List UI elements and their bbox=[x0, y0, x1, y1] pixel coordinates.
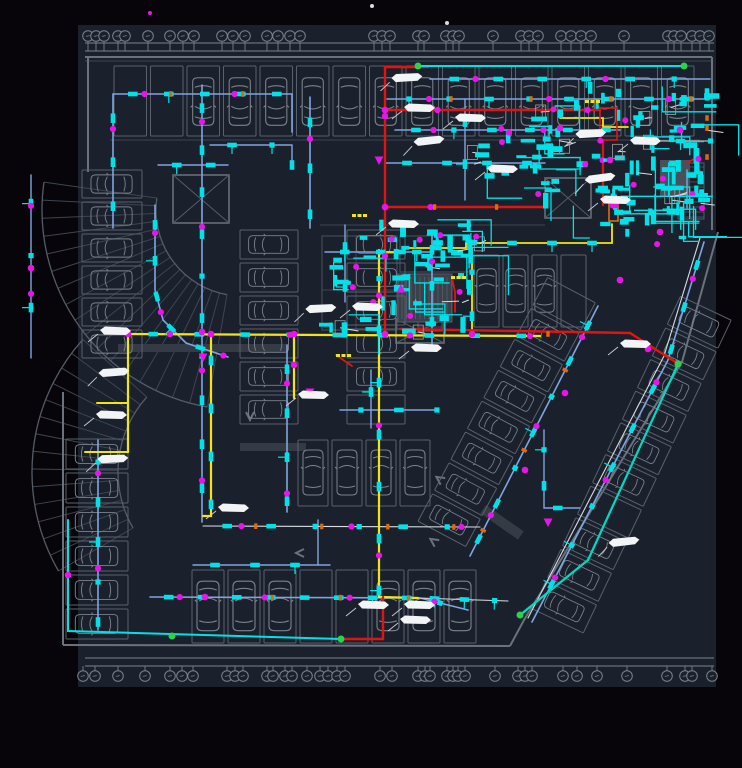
device-body bbox=[625, 77, 635, 82]
cluster-device bbox=[545, 189, 560, 193]
label-body bbox=[600, 196, 631, 205]
highlight-dash bbox=[591, 100, 595, 103]
wall-line bbox=[63, 645, 510, 646]
cluster-device bbox=[600, 222, 610, 226]
device-body bbox=[272, 92, 282, 97]
light-fixture-device bbox=[469, 270, 474, 275]
junction-dot bbox=[426, 96, 432, 102]
conduit-tick bbox=[449, 96, 452, 102]
margin-speck bbox=[370, 4, 374, 8]
junction-dot bbox=[533, 423, 539, 429]
cluster-device bbox=[478, 143, 490, 148]
junction-dot bbox=[677, 127, 684, 134]
light-fixture-device bbox=[209, 500, 214, 510]
cluster-device bbox=[672, 93, 676, 101]
label-body bbox=[298, 391, 329, 400]
device-body bbox=[644, 97, 654, 102]
conduit-tick bbox=[271, 595, 274, 601]
junction-dot bbox=[695, 156, 701, 162]
device-body bbox=[240, 332, 250, 337]
light-fixture-device bbox=[285, 408, 290, 418]
cluster-device bbox=[683, 142, 697, 148]
device-body bbox=[210, 563, 220, 568]
highlight-dash bbox=[457, 276, 461, 279]
junction-dot bbox=[291, 362, 298, 369]
cluster-device bbox=[333, 280, 349, 285]
cluster-device bbox=[394, 249, 399, 259]
junction-dot bbox=[199, 367, 205, 373]
device-body bbox=[547, 241, 557, 246]
light-fixture-device bbox=[553, 506, 563, 511]
device-body bbox=[463, 159, 468, 169]
light-fixture-device bbox=[402, 596, 412, 601]
cluster-device bbox=[679, 102, 686, 107]
light-fixture-device bbox=[272, 92, 282, 97]
device-body bbox=[200, 229, 205, 239]
cluster-device bbox=[551, 179, 559, 184]
device-body bbox=[369, 387, 374, 397]
light-fixture-device bbox=[209, 404, 214, 414]
cluster-device bbox=[651, 156, 656, 170]
junction-dot bbox=[199, 119, 205, 125]
cluster-device bbox=[648, 208, 652, 215]
cluster-device bbox=[329, 323, 333, 333]
junction-dot bbox=[622, 117, 628, 123]
junction-dot bbox=[457, 289, 463, 295]
cluster-device bbox=[467, 280, 472, 295]
junction-dot bbox=[617, 277, 624, 284]
device-body bbox=[442, 161, 452, 166]
device-body bbox=[200, 187, 205, 197]
light-fixture-device bbox=[376, 276, 381, 281]
cluster-device bbox=[434, 277, 444, 281]
light-fixture-device bbox=[266, 524, 276, 529]
junction-dot bbox=[552, 575, 558, 581]
junction-dot bbox=[657, 229, 664, 236]
light-fixture-device bbox=[200, 439, 205, 449]
cluster-device bbox=[435, 264, 450, 268]
light-fixture-device bbox=[285, 496, 290, 506]
junction-dot bbox=[654, 241, 660, 247]
cluster-device bbox=[669, 135, 674, 142]
junction-dot bbox=[584, 107, 590, 113]
light-fixture-device bbox=[96, 497, 101, 507]
junction-dot bbox=[141, 91, 147, 97]
device-body bbox=[377, 378, 382, 388]
cluster-device bbox=[516, 155, 526, 158]
endpoint-dot bbox=[517, 612, 524, 619]
cluster-device bbox=[391, 300, 395, 315]
cluster-device bbox=[447, 234, 453, 249]
light-fixture-device bbox=[28, 253, 33, 258]
light-fixture-device bbox=[200, 395, 205, 405]
light-fixture-device bbox=[449, 77, 459, 82]
cluster-stub bbox=[442, 301, 459, 302]
conduit-tick bbox=[386, 524, 389, 530]
cad-app-viewport bbox=[0, 0, 742, 768]
highlighted-text-mark bbox=[451, 276, 466, 279]
junction-dot bbox=[28, 265, 35, 272]
cluster-device bbox=[669, 161, 680, 167]
junction-dot bbox=[660, 176, 666, 182]
junction-dot bbox=[540, 127, 546, 133]
device-body bbox=[411, 128, 421, 133]
device-body bbox=[300, 595, 310, 600]
cluster-device bbox=[530, 164, 541, 168]
device-body bbox=[377, 430, 382, 440]
cluster-device bbox=[333, 258, 342, 263]
cluster-device bbox=[543, 193, 548, 209]
conduit-tick bbox=[705, 125, 708, 131]
label-body bbox=[404, 601, 435, 610]
light-fixture-device bbox=[95, 579, 100, 584]
cluster-device bbox=[484, 173, 494, 179]
light-fixture-device bbox=[200, 103, 205, 113]
junction-dot bbox=[110, 126, 116, 132]
junction-dot bbox=[382, 204, 389, 211]
device-body bbox=[95, 579, 100, 584]
light-fixture-device bbox=[199, 274, 204, 279]
junction-dot bbox=[28, 291, 34, 297]
junction-dot bbox=[389, 236, 395, 242]
device-body bbox=[434, 407, 439, 412]
junction-dot bbox=[506, 130, 512, 136]
junction-dot bbox=[582, 161, 588, 167]
junction-dot bbox=[535, 191, 541, 197]
beam-bar bbox=[240, 443, 306, 451]
junction-dot bbox=[382, 331, 389, 338]
light-fixture-device bbox=[308, 210, 313, 220]
cluster-device bbox=[631, 126, 634, 138]
cluster-device bbox=[364, 255, 377, 258]
light-fixture-device bbox=[164, 595, 174, 600]
device-body bbox=[164, 595, 174, 600]
light-fixture-device bbox=[200, 483, 205, 493]
conduit-tick bbox=[241, 91, 244, 97]
light-fixture-device bbox=[487, 128, 497, 133]
junction-dot bbox=[499, 139, 505, 145]
junction-dot bbox=[430, 127, 436, 133]
device-body bbox=[451, 127, 456, 132]
junction-dot bbox=[348, 523, 354, 529]
device-body bbox=[153, 256, 158, 266]
light-fixture-device bbox=[644, 97, 654, 102]
cluster-device bbox=[680, 97, 687, 101]
junction-dot bbox=[382, 253, 388, 259]
junction-dot bbox=[631, 182, 637, 188]
device-body bbox=[28, 253, 33, 258]
junction-dot bbox=[551, 106, 557, 112]
cluster-device bbox=[615, 155, 625, 160]
light-fixture-device bbox=[111, 157, 116, 167]
conduit-run-y bbox=[380, 597, 418, 598]
conduit-tick bbox=[407, 595, 410, 601]
cluster-device bbox=[694, 161, 699, 174]
cluster-device bbox=[546, 143, 553, 146]
junction-dot bbox=[353, 264, 359, 270]
light-fixture-device bbox=[285, 364, 290, 374]
cluster-device bbox=[704, 104, 717, 108]
junction-dot bbox=[199, 224, 205, 230]
cluster-device bbox=[541, 181, 550, 185]
junction-dot bbox=[429, 258, 435, 264]
light-fixture-device bbox=[563, 128, 573, 133]
light-fixture-device bbox=[358, 407, 363, 412]
cluster-device bbox=[360, 317, 372, 322]
cluster-device bbox=[401, 246, 409, 250]
cluster-device bbox=[574, 100, 579, 111]
cluster-device bbox=[699, 189, 704, 197]
light-fixture-device bbox=[200, 92, 210, 97]
junction-dot bbox=[666, 96, 672, 102]
device-body bbox=[200, 483, 205, 493]
device-body bbox=[564, 97, 574, 102]
cluster-device bbox=[651, 105, 658, 109]
junction-dot bbox=[607, 157, 614, 164]
cluster-device bbox=[630, 161, 634, 175]
device-body bbox=[308, 210, 313, 220]
junction-dot bbox=[382, 107, 389, 114]
device-body bbox=[402, 161, 412, 166]
highlighted-text-mark bbox=[336, 354, 351, 357]
cluster-device bbox=[342, 322, 348, 337]
junction-dot bbox=[376, 292, 382, 298]
device-body bbox=[206, 163, 216, 168]
device-body bbox=[111, 157, 116, 167]
margin-speck bbox=[445, 21, 449, 25]
cluster-device bbox=[600, 189, 610, 193]
light-fixture-device bbox=[300, 595, 310, 600]
device-body bbox=[377, 534, 382, 544]
junction-dot bbox=[291, 331, 298, 338]
cluster-device bbox=[679, 236, 686, 239]
label-body bbox=[487, 165, 518, 174]
junction-dot bbox=[458, 524, 464, 530]
device-body bbox=[96, 497, 101, 507]
cluster-device bbox=[381, 297, 385, 311]
conduit-tick bbox=[495, 204, 498, 210]
light-fixture-device bbox=[308, 164, 313, 174]
device-body bbox=[340, 250, 350, 255]
light-fixture-device bbox=[334, 595, 344, 600]
cluster-device bbox=[625, 173, 629, 187]
junction-dot bbox=[231, 91, 237, 97]
cluster-device bbox=[392, 275, 404, 280]
device-body bbox=[376, 276, 381, 281]
cluster-device bbox=[592, 154, 601, 159]
light-fixture-device bbox=[200, 313, 205, 323]
device-body bbox=[232, 595, 242, 600]
cluster-device bbox=[475, 152, 489, 157]
junction-dot bbox=[488, 512, 494, 518]
junction-dot bbox=[350, 284, 356, 290]
highlight-dash bbox=[462, 276, 466, 279]
light-fixture-device bbox=[537, 77, 547, 82]
light-fixture-device bbox=[96, 617, 101, 627]
highlight-dash bbox=[585, 100, 589, 103]
light-fixture-device bbox=[424, 333, 434, 338]
junction-dot bbox=[199, 329, 206, 336]
device-body bbox=[394, 408, 404, 413]
light-fixture-device bbox=[290, 160, 295, 170]
cluster-stub bbox=[541, 111, 550, 112]
endpoint-dot bbox=[675, 361, 682, 368]
cluster-device bbox=[436, 237, 439, 249]
cluster-device bbox=[330, 265, 344, 270]
cluster-device bbox=[656, 184, 665, 189]
highlighted-text-mark bbox=[585, 100, 600, 103]
light-fixture-device bbox=[542, 481, 547, 491]
junction-dot bbox=[417, 237, 423, 243]
junction-dot bbox=[382, 113, 388, 119]
junction-dot bbox=[603, 477, 609, 483]
junction-dot bbox=[158, 309, 164, 315]
device-body bbox=[563, 128, 573, 133]
device-body bbox=[285, 408, 290, 418]
light-fixture-device bbox=[377, 534, 382, 544]
junction-dot bbox=[220, 352, 226, 358]
cluster-device bbox=[413, 301, 422, 305]
cluster-device bbox=[625, 229, 629, 237]
device-body bbox=[209, 356, 214, 366]
device-body bbox=[290, 160, 295, 170]
junction-dot bbox=[262, 594, 268, 600]
device-body bbox=[334, 595, 344, 600]
cad-drawing-canvas[interactable] bbox=[0, 0, 742, 768]
cluster-device bbox=[672, 172, 676, 185]
cluster-device bbox=[620, 219, 629, 225]
junction-dot bbox=[95, 470, 101, 476]
device-body bbox=[200, 439, 205, 449]
junction-dot bbox=[208, 331, 215, 338]
endpoint-dot bbox=[681, 63, 688, 70]
light-fixture-device bbox=[148, 332, 158, 337]
junction-dot bbox=[527, 333, 533, 339]
device-body bbox=[209, 500, 214, 510]
junction-dot bbox=[284, 380, 290, 386]
junction-dot bbox=[407, 332, 413, 338]
highlight-dash bbox=[451, 276, 455, 279]
light-fixture-device bbox=[313, 524, 318, 529]
cluster-device bbox=[425, 322, 435, 326]
device-body bbox=[96, 617, 101, 627]
junction-dot bbox=[238, 523, 244, 529]
junction-dot bbox=[498, 126, 504, 132]
junction-dot bbox=[95, 565, 101, 571]
device-body bbox=[406, 96, 411, 101]
device-body bbox=[484, 97, 494, 102]
device-body bbox=[553, 506, 563, 511]
device-body bbox=[516, 334, 526, 339]
label-body bbox=[388, 220, 419, 229]
junction-dot bbox=[307, 136, 313, 142]
device-body bbox=[708, 138, 713, 143]
light-fixture-device bbox=[206, 163, 216, 168]
cluster-device bbox=[427, 229, 436, 234]
cluster-device bbox=[691, 124, 705, 128]
light-fixture-device bbox=[111, 113, 116, 123]
highlight-dash bbox=[342, 354, 346, 357]
device-body bbox=[199, 274, 204, 279]
device-body bbox=[200, 395, 205, 405]
cluster-device bbox=[636, 117, 640, 128]
light-fixture-device bbox=[625, 77, 635, 82]
conduit-tick bbox=[254, 523, 257, 529]
junction-dot bbox=[65, 572, 72, 579]
margin-speck bbox=[148, 11, 152, 15]
light-fixture-device bbox=[209, 356, 214, 366]
label-body bbox=[96, 411, 127, 420]
junction-dot bbox=[690, 276, 696, 282]
light-fixture-device bbox=[308, 118, 313, 128]
device-body bbox=[581, 77, 591, 82]
junction-dot bbox=[437, 232, 443, 238]
junction-dot bbox=[562, 390, 569, 397]
device-body bbox=[285, 496, 290, 506]
label-body bbox=[411, 344, 442, 353]
junction-dot bbox=[376, 552, 382, 558]
junction-dot bbox=[152, 230, 158, 236]
cluster-device bbox=[458, 223, 471, 227]
junction-dot bbox=[427, 204, 433, 210]
device-body bbox=[200, 145, 205, 155]
cluster-device bbox=[698, 198, 710, 202]
cluster-device bbox=[549, 125, 552, 134]
cluster-device bbox=[468, 248, 473, 263]
cluster-device bbox=[617, 110, 620, 121]
device-body bbox=[250, 563, 260, 568]
device-body bbox=[313, 524, 318, 529]
light-fixture-device bbox=[232, 595, 242, 600]
device-body bbox=[172, 163, 182, 168]
junction-dot bbox=[407, 313, 413, 319]
endpoint-dot bbox=[338, 636, 345, 643]
junction-dot bbox=[202, 594, 209, 601]
device-body bbox=[398, 524, 408, 529]
conduit-tick bbox=[433, 204, 436, 210]
light-fixture-device bbox=[210, 563, 220, 568]
cluster-device bbox=[519, 165, 528, 169]
light-fixture-device bbox=[357, 524, 362, 529]
light-fixture-device bbox=[516, 334, 526, 339]
cluster-device bbox=[588, 82, 592, 94]
device-body bbox=[377, 482, 382, 492]
device-body bbox=[542, 481, 547, 491]
device-body bbox=[227, 143, 237, 148]
light-fixture-device bbox=[240, 332, 250, 337]
device-body bbox=[209, 404, 214, 414]
junction-dot bbox=[434, 107, 440, 113]
junction-dot bbox=[597, 138, 603, 144]
light-fixture-device bbox=[153, 220, 158, 230]
device-body bbox=[111, 201, 116, 211]
device-body bbox=[308, 164, 313, 174]
highlight-dash bbox=[596, 100, 600, 103]
cluster-device bbox=[413, 240, 416, 248]
light-fixture-device bbox=[525, 128, 535, 133]
device-body bbox=[153, 220, 158, 230]
cluster-device bbox=[467, 239, 472, 248]
junction-dot bbox=[522, 467, 529, 474]
device-body bbox=[358, 407, 363, 412]
light-fixture-device bbox=[111, 201, 116, 211]
device-body bbox=[377, 586, 382, 596]
device-body bbox=[357, 524, 362, 529]
light-fixture-device bbox=[200, 145, 205, 155]
junction-dot bbox=[699, 205, 705, 211]
conduit-tick bbox=[169, 91, 172, 97]
conduit-tick bbox=[689, 96, 692, 102]
